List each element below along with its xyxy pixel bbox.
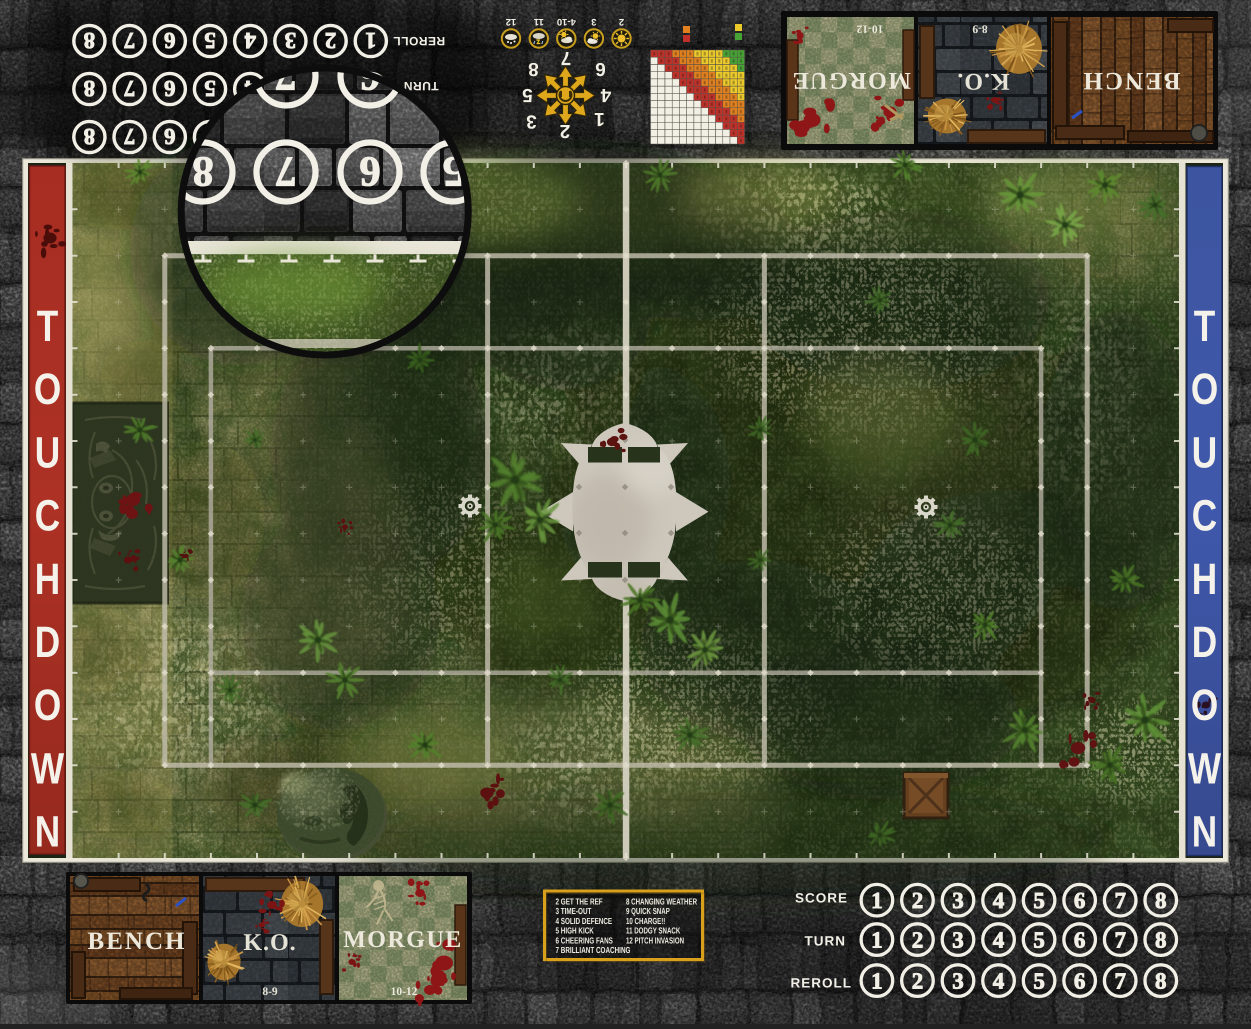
svg-text:7: 7 <box>1114 968 1126 993</box>
svg-text:12: 12 <box>506 16 517 27</box>
svg-text:3: 3 <box>591 16 596 27</box>
svg-text:REROLL: REROLL <box>393 34 445 48</box>
svg-text:1: 1 <box>871 968 883 993</box>
svg-text:SCORE: SCORE <box>795 891 848 906</box>
svg-text:5: 5 <box>522 84 533 105</box>
svg-text:C: C <box>35 492 60 541</box>
svg-text:3: 3 <box>952 888 964 913</box>
svg-text:4-10: 4-10 <box>557 16 576 27</box>
svg-text:REROLL: REROLL <box>791 976 853 991</box>
svg-text:6: 6 <box>164 76 176 101</box>
svg-text:N: N <box>1192 808 1217 857</box>
svg-text:8: 8 <box>1155 927 1167 952</box>
svg-text:7 BRILLIANT COACHING: 7 BRILLIANT COACHING <box>556 945 631 955</box>
svg-text:8: 8 <box>528 58 539 79</box>
svg-text:6 CHEERING FANS: 6 CHEERING FANS <box>556 935 613 945</box>
svg-text:8-9: 8-9 <box>972 23 988 35</box>
svg-text:O: O <box>1191 681 1218 730</box>
svg-text:H: H <box>1192 555 1217 604</box>
svg-text:8: 8 <box>84 76 96 101</box>
svg-text:5: 5 <box>204 76 216 101</box>
svg-text:5: 5 <box>1033 968 1045 993</box>
svg-text:W: W <box>1188 744 1222 793</box>
svg-text:6: 6 <box>359 147 381 194</box>
svg-text:C: C <box>1192 492 1217 541</box>
svg-text:8: 8 <box>84 28 96 53</box>
svg-text:4: 4 <box>993 927 1005 952</box>
svg-text:11 DODGY SNACK: 11 DODGY SNACK <box>626 926 681 936</box>
svg-text:3: 3 <box>285 28 297 53</box>
svg-text:9 QUICK SNAP: 9 QUICK SNAP <box>626 906 670 916</box>
svg-text:7: 7 <box>1114 927 1126 952</box>
svg-text:U: U <box>35 428 60 477</box>
svg-text:6: 6 <box>1074 968 1086 993</box>
svg-text:6: 6 <box>1074 927 1086 952</box>
svg-text:3: 3 <box>526 110 537 131</box>
svg-text:2: 2 <box>560 120 571 141</box>
svg-text:1: 1 <box>594 108 605 129</box>
svg-text:MORGUE: MORGUE <box>791 67 911 93</box>
svg-text:BENCH: BENCH <box>88 928 187 955</box>
svg-text:8: 8 <box>84 124 96 149</box>
svg-text:TURN: TURN <box>805 934 847 949</box>
svg-text:2: 2 <box>912 927 924 952</box>
svg-text:MORGUE: MORGUE <box>343 927 463 953</box>
svg-text:K.O.: K.O. <box>956 68 1009 94</box>
svg-text:4: 4 <box>244 28 256 53</box>
svg-text:1: 1 <box>871 888 883 913</box>
svg-text:10 CHARGE!!: 10 CHARGE!! <box>626 916 665 926</box>
svg-text:7: 7 <box>1114 888 1126 913</box>
svg-text:7: 7 <box>124 124 136 149</box>
svg-text:12 PITCH INVASION: 12 PITCH INVASION <box>626 935 684 945</box>
svg-text:4: 4 <box>600 84 611 105</box>
svg-text:6: 6 <box>164 28 176 53</box>
svg-text:2: 2 <box>619 16 624 27</box>
svg-text:N: N <box>35 808 60 857</box>
svg-text:2: 2 <box>912 888 924 913</box>
svg-text:T: T <box>1194 302 1216 351</box>
svg-text:H: H <box>35 555 60 604</box>
svg-text:5: 5 <box>1033 927 1045 952</box>
svg-text:O: O <box>34 365 61 414</box>
svg-text:1: 1 <box>871 927 883 952</box>
svg-text:3: 3 <box>952 927 964 952</box>
svg-text:O: O <box>1191 365 1218 414</box>
svg-text:7: 7 <box>124 28 136 53</box>
svg-text:3: 3 <box>952 968 964 993</box>
svg-text:11: 11 <box>533 16 544 27</box>
svg-text:10-12: 10-12 <box>391 986 418 998</box>
svg-text:K.O.: K.O. <box>243 930 296 956</box>
svg-text:5: 5 <box>1033 888 1045 913</box>
svg-text:5 HIGH KICK: 5 HIGH KICK <box>556 926 595 936</box>
svg-text:U: U <box>1192 428 1217 477</box>
svg-text:4: 4 <box>993 888 1005 913</box>
svg-text:2: 2 <box>912 968 924 993</box>
svg-text:D: D <box>35 618 60 667</box>
svg-text:1: 1 <box>365 28 377 53</box>
svg-text:T: T <box>37 302 59 351</box>
svg-text:6: 6 <box>595 58 606 79</box>
svg-text:8-9: 8-9 <box>262 986 278 998</box>
svg-text:8: 8 <box>1155 888 1167 913</box>
svg-text:7: 7 <box>561 47 572 68</box>
svg-text:2: 2 <box>325 28 337 53</box>
svg-text:7: 7 <box>124 76 136 101</box>
svg-text:8 CHANGING WEATHER: 8 CHANGING WEATHER <box>626 897 697 907</box>
svg-text:5: 5 <box>204 28 216 53</box>
svg-text:10-12: 10-12 <box>856 23 883 35</box>
svg-text:4: 4 <box>993 968 1005 993</box>
svg-text:O: O <box>34 681 61 730</box>
svg-text:BENCH: BENCH <box>1082 67 1181 94</box>
svg-text:2 GET THE REF: 2 GET THE REF <box>556 897 604 907</box>
svg-text:7: 7 <box>275 147 297 194</box>
svg-text:8: 8 <box>1155 968 1167 993</box>
svg-text:D: D <box>1192 618 1217 667</box>
svg-text:6: 6 <box>1074 888 1086 913</box>
svg-text:W: W <box>31 744 65 793</box>
svg-text:4 SOLID DEFENCE: 4 SOLID DEFENCE <box>556 916 613 926</box>
svg-text:3 TIME-OUT: 3 TIME-OUT <box>556 906 592 916</box>
svg-text:6: 6 <box>164 124 176 149</box>
